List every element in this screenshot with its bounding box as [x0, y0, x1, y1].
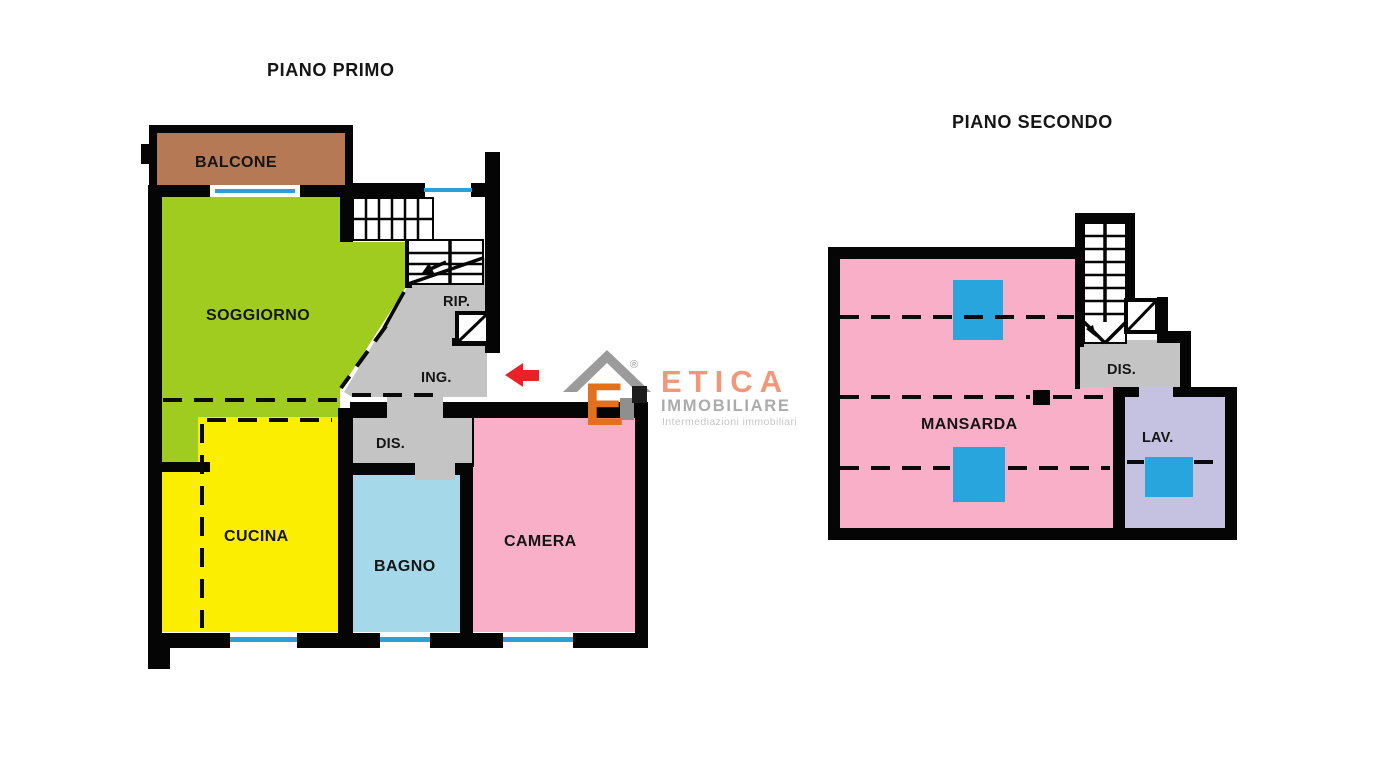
- lav-skylight: [1145, 457, 1193, 497]
- logo-division: IMMOBILIARE: [661, 397, 791, 415]
- room-bagno: [352, 470, 462, 632]
- floor2-door-symbol: [1126, 300, 1157, 332]
- lav-door-gap: [1139, 387, 1173, 397]
- logo-tagline: Intermediazioni immobiliari: [662, 416, 797, 428]
- logo-house-dark: [632, 386, 647, 403]
- mansarda-label: MANSARDA: [921, 416, 1018, 433]
- bagno-window: [380, 637, 430, 642]
- room-camera: [473, 418, 635, 632]
- balcone-label: BALCONE: [195, 154, 277, 171]
- mansarda-skylight-2: [953, 447, 1005, 502]
- logo-monogram: E: [584, 371, 624, 438]
- bagno-label: BAGNO: [374, 558, 436, 575]
- etica-logo: E ® ETICA IMMOBILIARE Intermediazioni im…: [563, 350, 797, 438]
- area-dis: [348, 418, 473, 467]
- cucina-label: CUCINA: [224, 528, 289, 545]
- mansarda-skylight-1: [953, 280, 1003, 340]
- entrance-arrow-icon: [505, 363, 539, 387]
- area-dis-bagno-door: [415, 463, 455, 480]
- camera-window: [503, 637, 573, 642]
- dis2-label: DIS.: [1107, 362, 1136, 378]
- floor2-plan: PIANO SECONDO: [828, 112, 1237, 540]
- rip-door-symbol: [457, 313, 488, 343]
- balcony-window: [215, 189, 295, 193]
- ing-label: ING.: [421, 370, 452, 386]
- floor2-stairs: [1084, 223, 1126, 343]
- floor2-title: PIANO SECONDO: [952, 112, 1113, 132]
- rip-label: RIP.: [443, 294, 470, 310]
- floorplan-canvas: PIANO PRIMO: [0, 0, 1385, 778]
- stair-window: [424, 188, 472, 192]
- logo-registered-mark: ®: [630, 359, 638, 371]
- floor1-plan: PIANO PRIMO: [141, 60, 648, 669]
- cucina-window: [230, 637, 297, 642]
- camera-label: CAMERA: [504, 533, 577, 550]
- floor1-title: PIANO PRIMO: [267, 60, 395, 80]
- floorplan-image: PIANO PRIMO: [0, 0, 1385, 778]
- soggiorno-label: SOGGIORNO: [206, 307, 310, 324]
- dis-label: DIS.: [376, 436, 405, 452]
- area-ing-dis-door: [387, 397, 443, 418]
- logo-brand: ETICA: [661, 364, 789, 399]
- lav-label: LAV.: [1142, 430, 1173, 446]
